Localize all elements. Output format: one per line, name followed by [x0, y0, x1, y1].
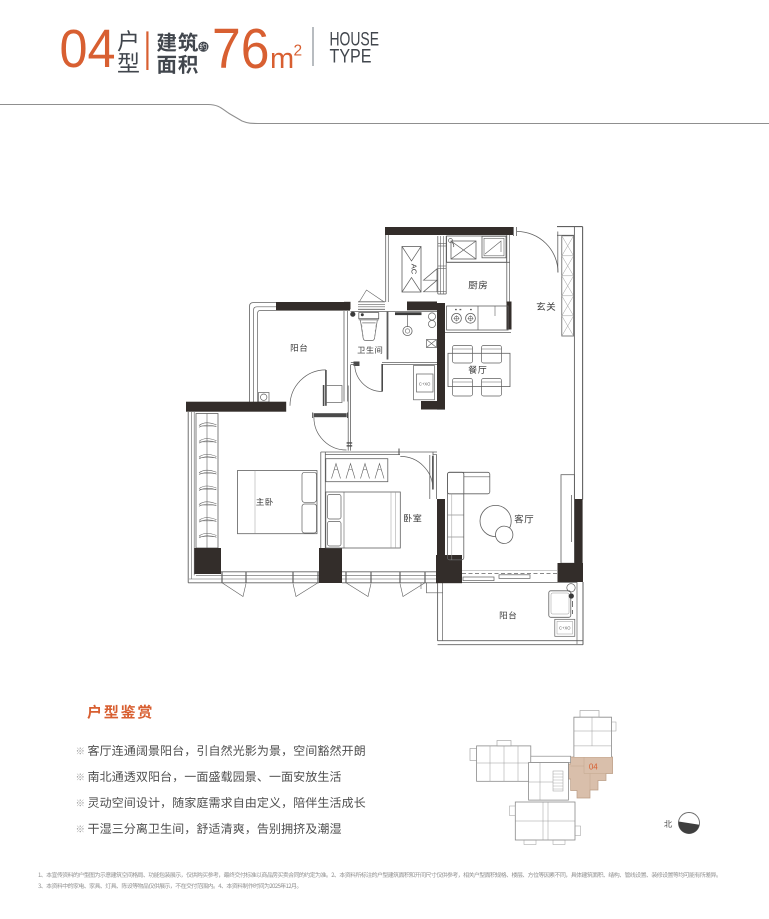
- svg-text:04: 04: [60, 20, 116, 79]
- svg-text:C+XO: C+XO: [559, 626, 571, 631]
- svg-text:76: 76: [212, 17, 270, 80]
- svg-text:TYPE: TYPE: [330, 46, 372, 67]
- svg-text:AC: AC: [410, 264, 419, 275]
- svg-text:m: m: [270, 43, 294, 75]
- svg-text:2: 2: [294, 42, 303, 59]
- svg-text:C+XO: C+XO: [419, 382, 431, 387]
- svg-text:04: 04: [589, 763, 598, 772]
